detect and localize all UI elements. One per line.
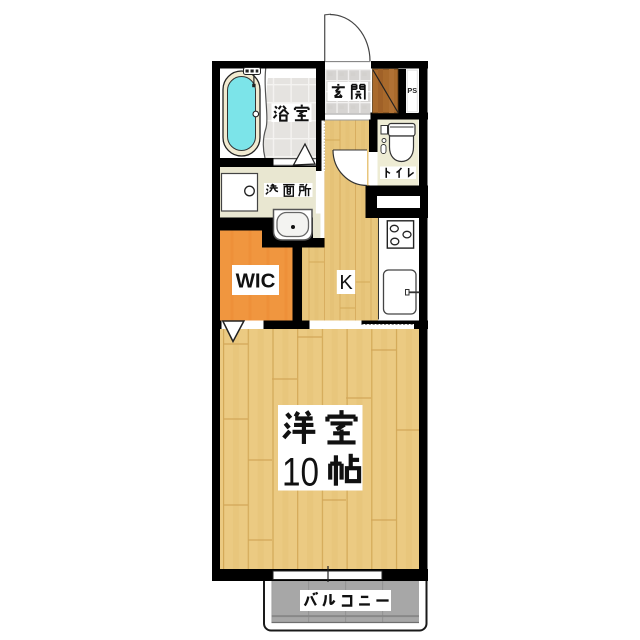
svg-text:K: K bbox=[339, 272, 353, 294]
svg-text:WIC: WIC bbox=[236, 270, 276, 293]
svg-text:PS: PS bbox=[407, 86, 417, 95]
svg-text:10: 10 bbox=[282, 451, 319, 495]
